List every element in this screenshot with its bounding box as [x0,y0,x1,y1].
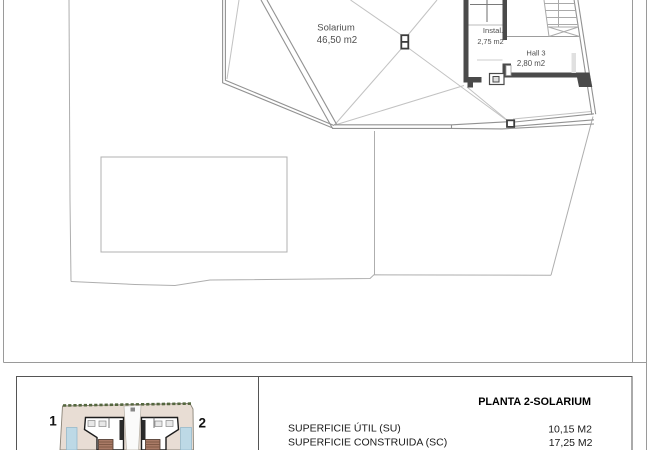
svg-text:2,75 m2: 2,75 m2 [477,37,503,46]
svg-text:Solarium: Solarium [317,23,355,34]
svg-text:Hall 3: Hall 3 [526,49,545,58]
svg-text:2,80 m2: 2,80 m2 [517,59,545,68]
svg-text:PLANTA 2-SOLARIUM: PLANTA 2-SOLARIUM [478,396,591,408]
svg-text:SUPERFICIE CONSTRUIDA (SC): SUPERFICIE CONSTRUIDA (SC) [288,437,447,449]
svg-text:10,15 M2: 10,15 M2 [548,423,592,435]
svg-text:46,50 m2: 46,50 m2 [317,35,357,46]
svg-text:2: 2 [199,415,207,430]
svg-text:SUPERFICIE ÚTIL (SU): SUPERFICIE ÚTIL (SU) [288,422,401,435]
svg-text:Instal.: Instal. [483,26,503,35]
svg-text:1: 1 [49,413,57,428]
svg-text:17,25 M2: 17,25 M2 [549,437,593,449]
